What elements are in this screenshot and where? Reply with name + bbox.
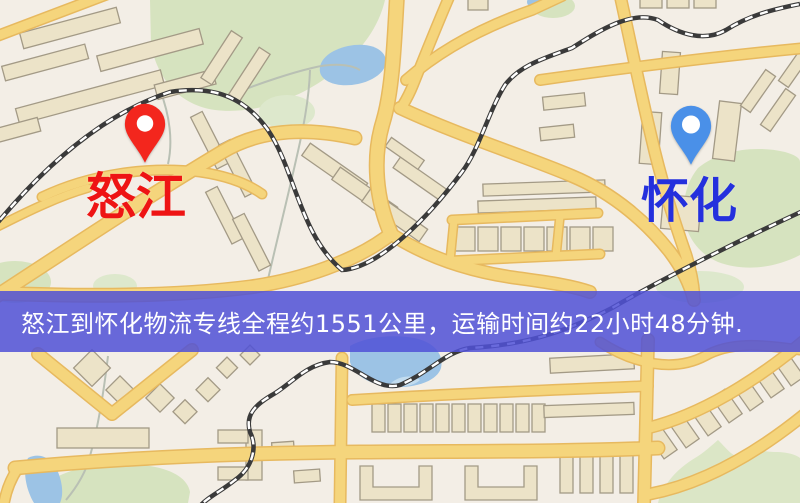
map-pin-icon [668, 104, 714, 168]
origin-city-label: 怒江 [86, 172, 186, 222]
destination-pin[interactable] [668, 104, 714, 168]
destination-city-label: 怀化 [641, 177, 737, 225]
map-pin-icon [122, 102, 168, 166]
route-info-banner: 怒江到怀化物流专线全程约1551公里，运输时间约22小时48分钟. [0, 291, 800, 352]
route-info-text: 怒江到怀化物流专线全程约1551公里，运输时间约22小时48分钟. [0, 304, 753, 339]
map-screenshot: 怒江 怀化 怒江到怀化物流专线全程约1551公里，运输时间约22小时48分钟. [0, 0, 800, 503]
origin-pin[interactable] [122, 102, 168, 166]
origin-pin-shape [125, 104, 165, 163]
destination-pin-shape [671, 106, 711, 165]
map-canvas[interactable] [0, 0, 800, 503]
